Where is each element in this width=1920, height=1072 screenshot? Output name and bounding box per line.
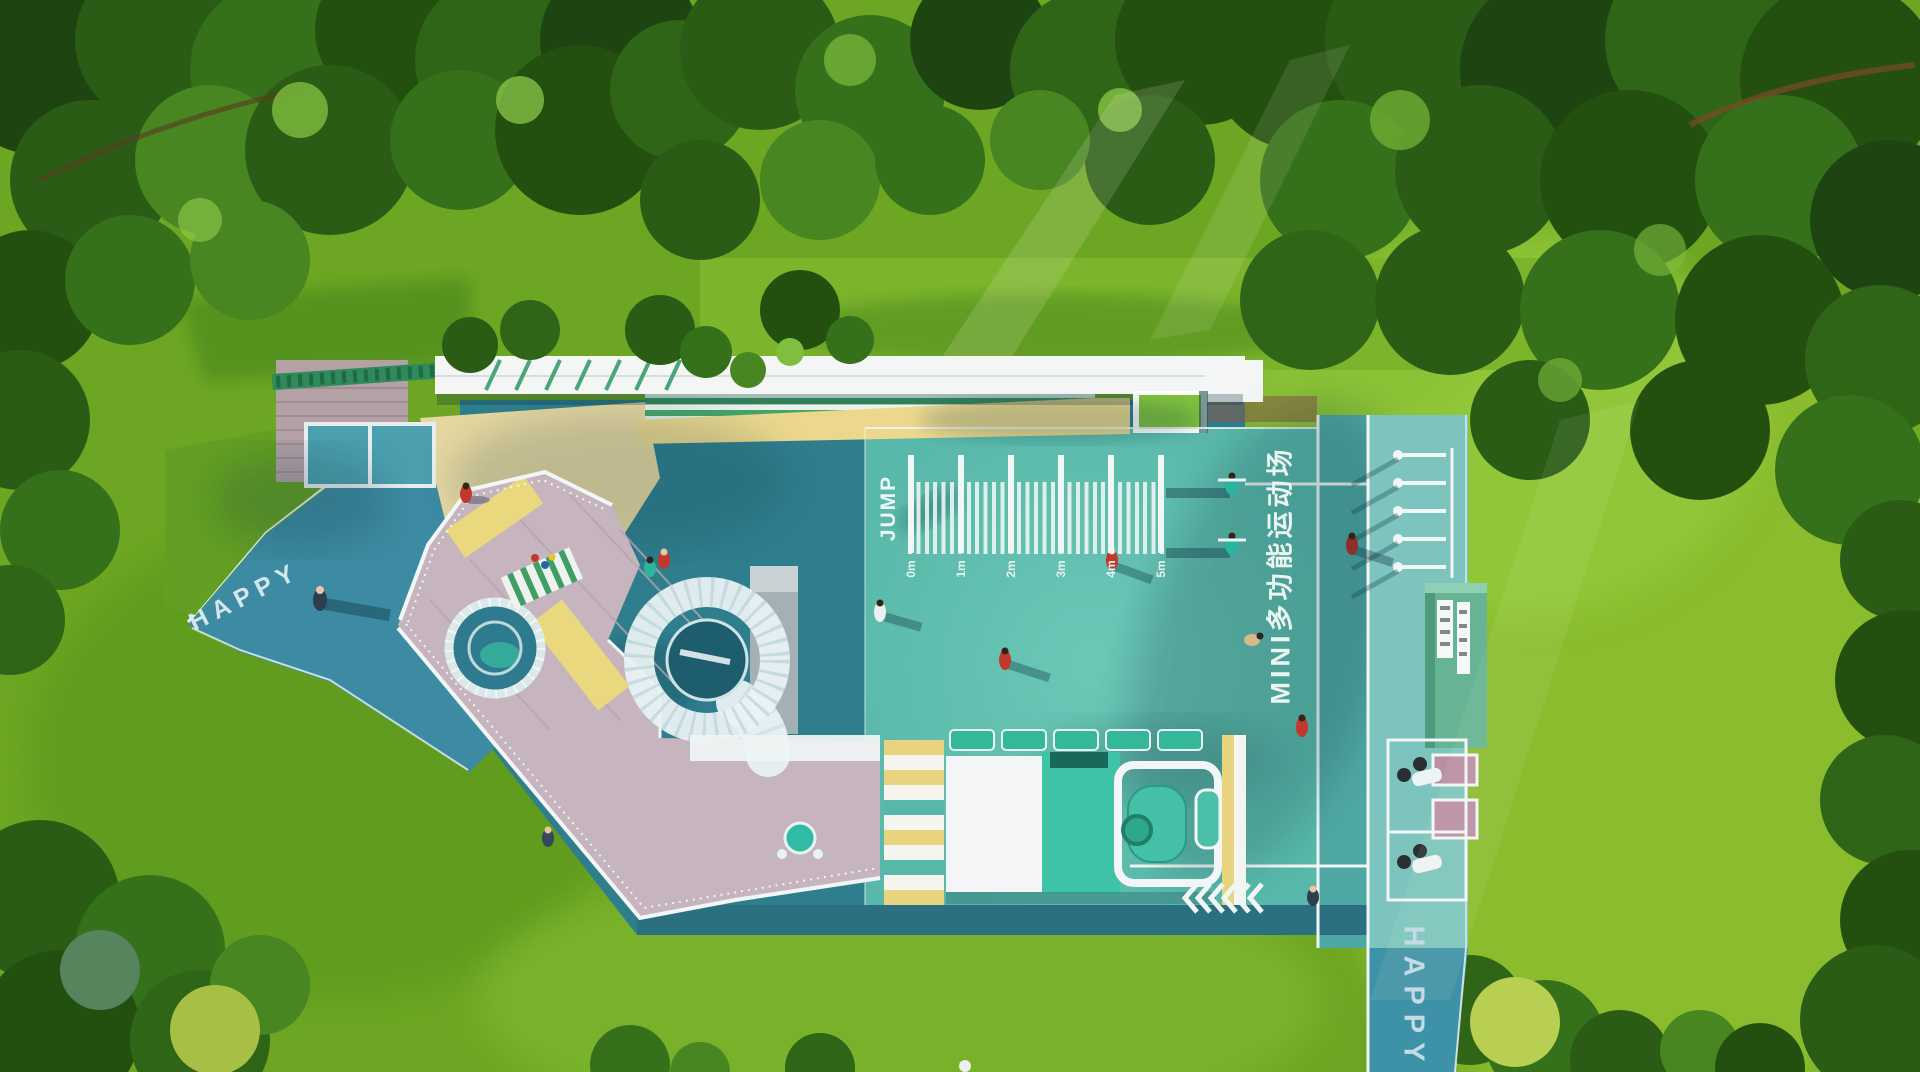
ruler-mark-1m: 1m [954,560,968,577]
ruler-mark-3m: 3m [1054,560,1068,577]
ruler-mark-5m: 5m [1154,560,1168,577]
ruler-mark-4m: 4m [1104,560,1118,577]
ruler-mark-0m: 0m [904,560,918,577]
scene-canvas [0,0,1920,1072]
round-table [785,823,815,853]
slide-exit-platform [690,735,880,761]
happy-right-label: HAPPY [1397,926,1430,1071]
aerial-playground-render: HAPPY JUMP 0m 1m 2m 3m 4m 5m MINI多功能运动场 … [0,0,1920,1072]
jump-label: JUMP [877,475,901,541]
striped-bridge [884,740,944,905]
person [959,1060,971,1072]
net-climber-hole [449,602,541,694]
train-smokestack [1123,816,1151,844]
train-canopy-teal [1042,752,1120,894]
court-name-label: MINI多功能运动场 [1259,446,1298,705]
ruler-mark-2m: 2m [1004,560,1018,577]
train-canopy-white [946,756,1042,892]
